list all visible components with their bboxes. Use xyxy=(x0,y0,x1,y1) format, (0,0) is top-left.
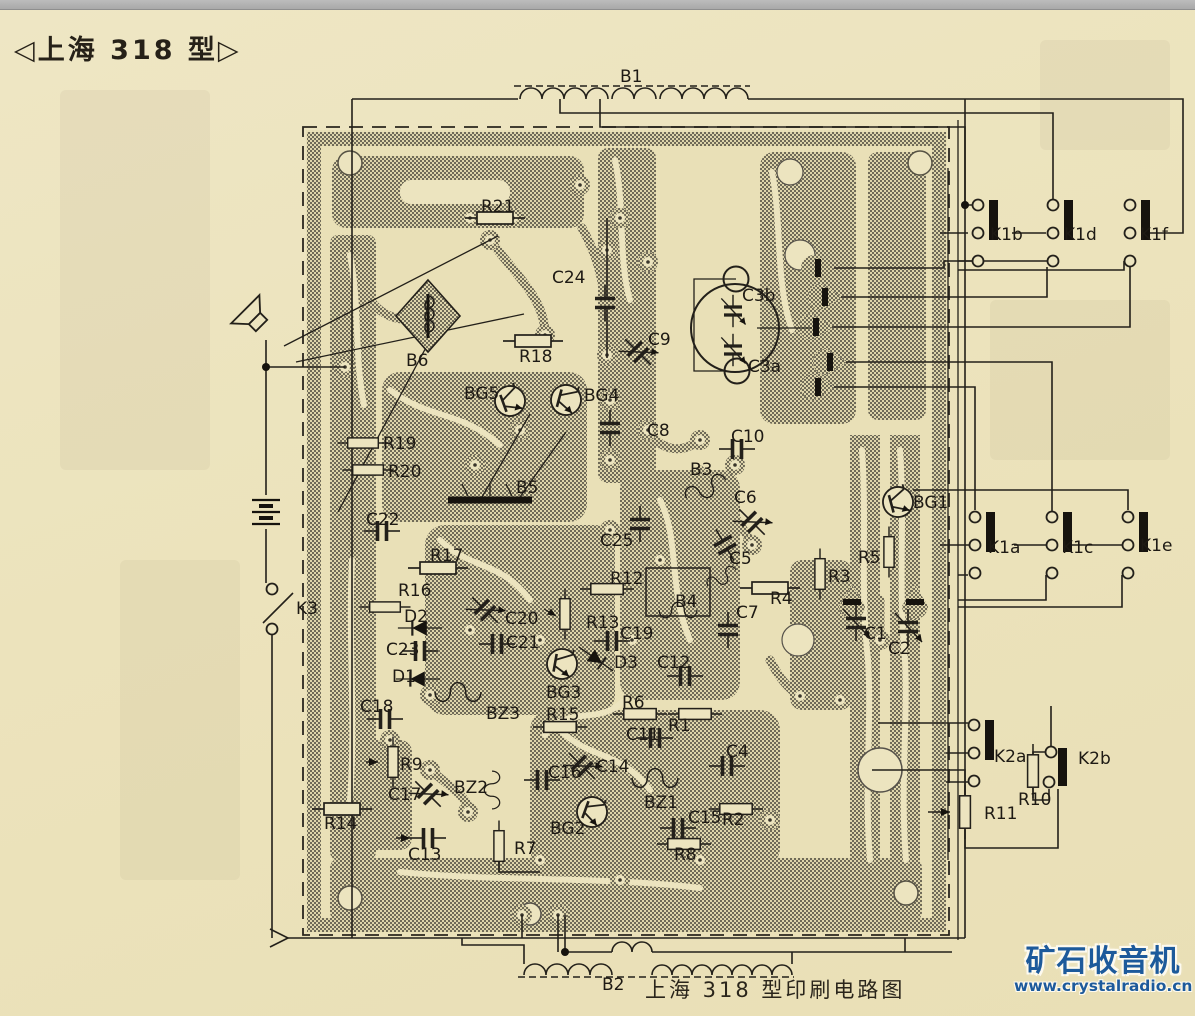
component-label-C20: C20 xyxy=(505,609,539,629)
component-label-R4: R4 xyxy=(770,589,793,609)
component-label-C24: C24 xyxy=(552,268,586,288)
component-label-C2: C2 xyxy=(888,639,911,659)
component-label-B2: B2 xyxy=(602,975,624,995)
component-label-B6: B6 xyxy=(406,351,428,371)
component-label-K1a: K1a xyxy=(988,538,1020,558)
component-label-C16: C16 xyxy=(548,763,582,783)
speaker-icon xyxy=(231,295,276,340)
coil-b1 xyxy=(514,86,750,99)
component-label-C18: C18 xyxy=(360,697,394,717)
k3-lever xyxy=(263,593,293,623)
component-label-C1: C1 xyxy=(864,624,887,644)
component-label-C17: C17 xyxy=(388,785,422,805)
component-label-C12: C12 xyxy=(657,653,691,673)
watermark-brand: 矿石收音机 xyxy=(1014,946,1192,978)
component-label-C11: C11 xyxy=(626,725,660,745)
component-label-K1b: K1b xyxy=(990,225,1023,245)
component-label-BZ2: BZ2 xyxy=(454,778,488,798)
component-label-K1d: K1d xyxy=(1064,225,1097,245)
component-label-R18: R18 xyxy=(519,347,552,367)
battery-icon xyxy=(252,500,280,524)
component-label-R21: R21 xyxy=(481,197,514,217)
component-label-C25: C25 xyxy=(600,531,634,551)
component-label-C14: C14 xyxy=(596,757,630,777)
component-label-R7: R7 xyxy=(514,839,537,859)
switch-banks xyxy=(969,200,1151,788)
component-label-BZ1: BZ1 xyxy=(644,793,678,813)
component-label-C22: C22 xyxy=(366,510,400,530)
component-label-K2b: K2b xyxy=(1078,749,1111,769)
component-label-C3b: C3b xyxy=(742,286,775,306)
component-label-C6: C6 xyxy=(734,488,757,508)
component-label-R6: R6 xyxy=(622,693,645,713)
resistor-r11 xyxy=(960,785,971,839)
component-label-R9: R9 xyxy=(400,755,423,775)
component-label-C21: C21 xyxy=(506,633,540,653)
component-label-R14: R14 xyxy=(324,814,357,834)
component-label-C10: C10 xyxy=(731,427,765,447)
switch-k2b xyxy=(1044,747,1068,788)
component-label-R15: R15 xyxy=(546,705,579,725)
component-label-BG5: BG5 xyxy=(464,384,499,404)
watermark: 矿石收音机 www.crystalradio.cn xyxy=(1014,946,1192,994)
component-label-BG4: BG4 xyxy=(584,386,619,406)
component-label-R11: R11 xyxy=(984,804,1017,824)
component-label-C7: C7 xyxy=(736,603,759,623)
component-label-R5: R5 xyxy=(858,548,881,568)
component-label-C3a: C3a xyxy=(748,357,781,377)
component-label-B4: B4 xyxy=(675,592,697,612)
pcb-diagram: B1R21C24C3bC3aB6R18C9BG5BG4C8C10B3R19R20… xyxy=(0,0,1195,1016)
scanned-page: ◁上海 318 型▷ xyxy=(0,0,1195,1016)
component-label-R16: R16 xyxy=(398,581,431,601)
component-label-B5: B5 xyxy=(516,478,538,498)
component-label-B3: B3 xyxy=(690,460,712,480)
component-label-K1c: K1c xyxy=(1062,538,1093,558)
component-label-R1: R1 xyxy=(668,716,691,736)
component-label-K1f: K1f xyxy=(1140,225,1169,245)
component-label-BG3: BG3 xyxy=(546,683,581,703)
component-label-BG1: BG1 xyxy=(913,493,948,513)
component-label-R13: R13 xyxy=(586,613,619,633)
component-label-D3: D3 xyxy=(614,653,638,673)
component-label-K2a: K2a xyxy=(994,747,1026,767)
component-label-C5: C5 xyxy=(729,549,752,569)
component-label-BG2: BG2 xyxy=(550,819,585,839)
component-label-BZ3: BZ3 xyxy=(486,704,520,724)
component-label-C8: C8 xyxy=(647,421,670,441)
component-label-K3: K3 xyxy=(296,599,318,619)
component-label-C19: C19 xyxy=(620,624,654,644)
component-label-R2: R2 xyxy=(722,810,745,830)
component-label-C13: C13 xyxy=(408,845,442,865)
coil-b2 xyxy=(518,942,794,977)
component-label-R19: R19 xyxy=(383,434,416,454)
component-label-R17: R17 xyxy=(430,546,463,566)
component-label-C9: C9 xyxy=(648,330,671,350)
component-label-C15: C15 xyxy=(688,808,722,828)
figure-caption: 上海 318 型印刷电路图 xyxy=(645,974,905,1004)
component-label-D1: D1 xyxy=(392,667,416,687)
component-label-R20: R20 xyxy=(388,462,421,482)
switch-k2a xyxy=(969,720,995,787)
component-label-R8: R8 xyxy=(674,845,697,865)
component-label-R10: R10 xyxy=(1018,790,1051,810)
component-label-D2: D2 xyxy=(404,607,428,627)
component-label-R12: R12 xyxy=(610,569,643,589)
component-label-K1e: K1e xyxy=(1140,536,1172,556)
component-label-C4: C4 xyxy=(726,742,749,762)
switch-k3 xyxy=(267,584,278,635)
component-label-B1: B1 xyxy=(620,67,642,87)
component-label-R3: R3 xyxy=(828,567,851,587)
watermark-url: www.crystalradio.cn xyxy=(1014,978,1192,994)
component-label-C23: C23 xyxy=(386,640,420,660)
